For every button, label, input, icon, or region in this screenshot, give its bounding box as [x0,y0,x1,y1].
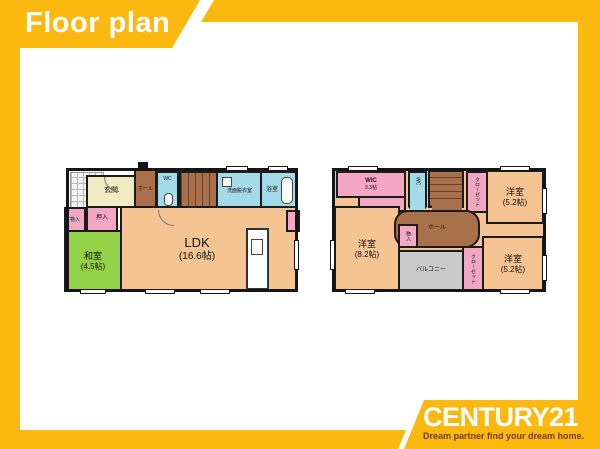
floor2-plan: WIC 3.3帖 WC クローゼット 洋室 (5.2帖) ホール 物入 洋室 (… [0,0,600,449]
closet-se-label: クローゼット [470,254,476,284]
kitchen-counter [246,228,269,290]
balcony-label: バルコニー [416,267,446,274]
window-wic [348,166,378,171]
window-bedroom-w [345,289,375,294]
storage-2f-label: 物入 [405,231,411,241]
wic-size: 3.3帖 [365,185,377,191]
room-bedroom-ne: 洋室 (5.2帖) [486,170,544,224]
floorplan-image: Floor plan CENTURY21 Dream partner find … [0,0,600,449]
kitchen-sink-icon [251,239,263,255]
bedroom-w-name: 洋室 [358,239,376,250]
window-bedroom-se [500,289,530,294]
window-bedroom-ne [500,166,530,171]
bedroom-w-size: (8.2帖) [355,250,379,260]
window-ldk-2 [200,289,230,294]
room-bedroom-w: 洋室 (8.2帖) [334,206,400,292]
closet-ne-label: クローゼット [474,177,480,207]
room-closet-ne: クローゼット [466,171,488,213]
bedroom-ne-name: 洋室 [506,187,524,198]
hall-2f-label: ホール [428,225,446,232]
window-washroom [226,166,248,171]
wc-2f-label: WC [415,177,421,185]
room-bedroom-se: 洋室 (5.2帖) [482,236,544,292]
window-washitsu [80,289,106,294]
window-ldk-3 [294,240,299,270]
room-closet-se: クローゼット [462,246,484,292]
window-bedroom-se-side [542,255,547,281]
bedroom-ne-size: (5.2帖) [503,198,527,208]
room-wic: WIC 3.3帖 [336,171,406,198]
bedroom-se-name: 洋室 [504,254,522,265]
window-bath [268,166,288,171]
room-storage-2f: 物入 [398,224,418,248]
room-balcony: バルコニー [398,250,464,292]
bedroom-se-size: (5.2帖) [501,265,525,275]
window-bedroom-ne-side [542,188,547,214]
window-ldk-1 [145,289,175,294]
window-bedroom-w-side [330,240,335,270]
stairs-2f [428,170,464,208]
